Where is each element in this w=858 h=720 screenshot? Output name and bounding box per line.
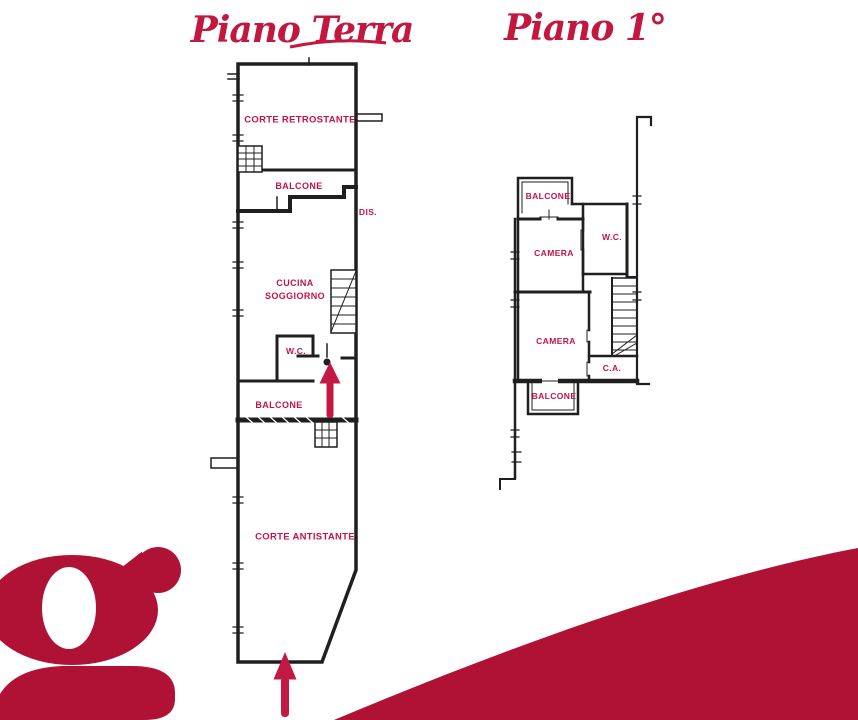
floorplan-page: Piano Terra Piano 1° CORTE RETROSTANTE B…: [0, 0, 858, 720]
room-label-cucina-soggiorno: CUCINA SOGGIORNO: [265, 277, 325, 303]
room-label-wc-p1: W.C.: [602, 232, 622, 242]
room-label-camera-nord: CAMERA: [534, 248, 574, 258]
room-label-balcone-sud: BALCONE: [255, 400, 302, 410]
room-label-wc-ground: W.C.: [286, 346, 306, 356]
room-label-corte-antistante: CORTE ANTISTANTE: [255, 532, 355, 543]
room-label-camera-sud: CAMERA: [536, 336, 576, 346]
room-label-corte-retrostante: CORTE RETROSTANTE: [244, 115, 356, 126]
brand-logo-g: [0, 547, 181, 720]
brand-curve-shape: [334, 548, 858, 720]
ground-floor-title: Piano Terra: [191, 9, 414, 51]
first-floor-title: Piano 1°: [504, 7, 666, 49]
room-label-dis: DIS.: [359, 207, 377, 217]
room-label-balcone-nord: BALCONE: [275, 181, 322, 191]
room-label-balcone-nord-p1: BALCONE: [526, 191, 571, 201]
room-label-balcone-sud-p1: BALCONE: [532, 391, 577, 401]
brand-graphics: [0, 0, 858, 720]
room-label-ca: C.A.: [603, 363, 622, 373]
